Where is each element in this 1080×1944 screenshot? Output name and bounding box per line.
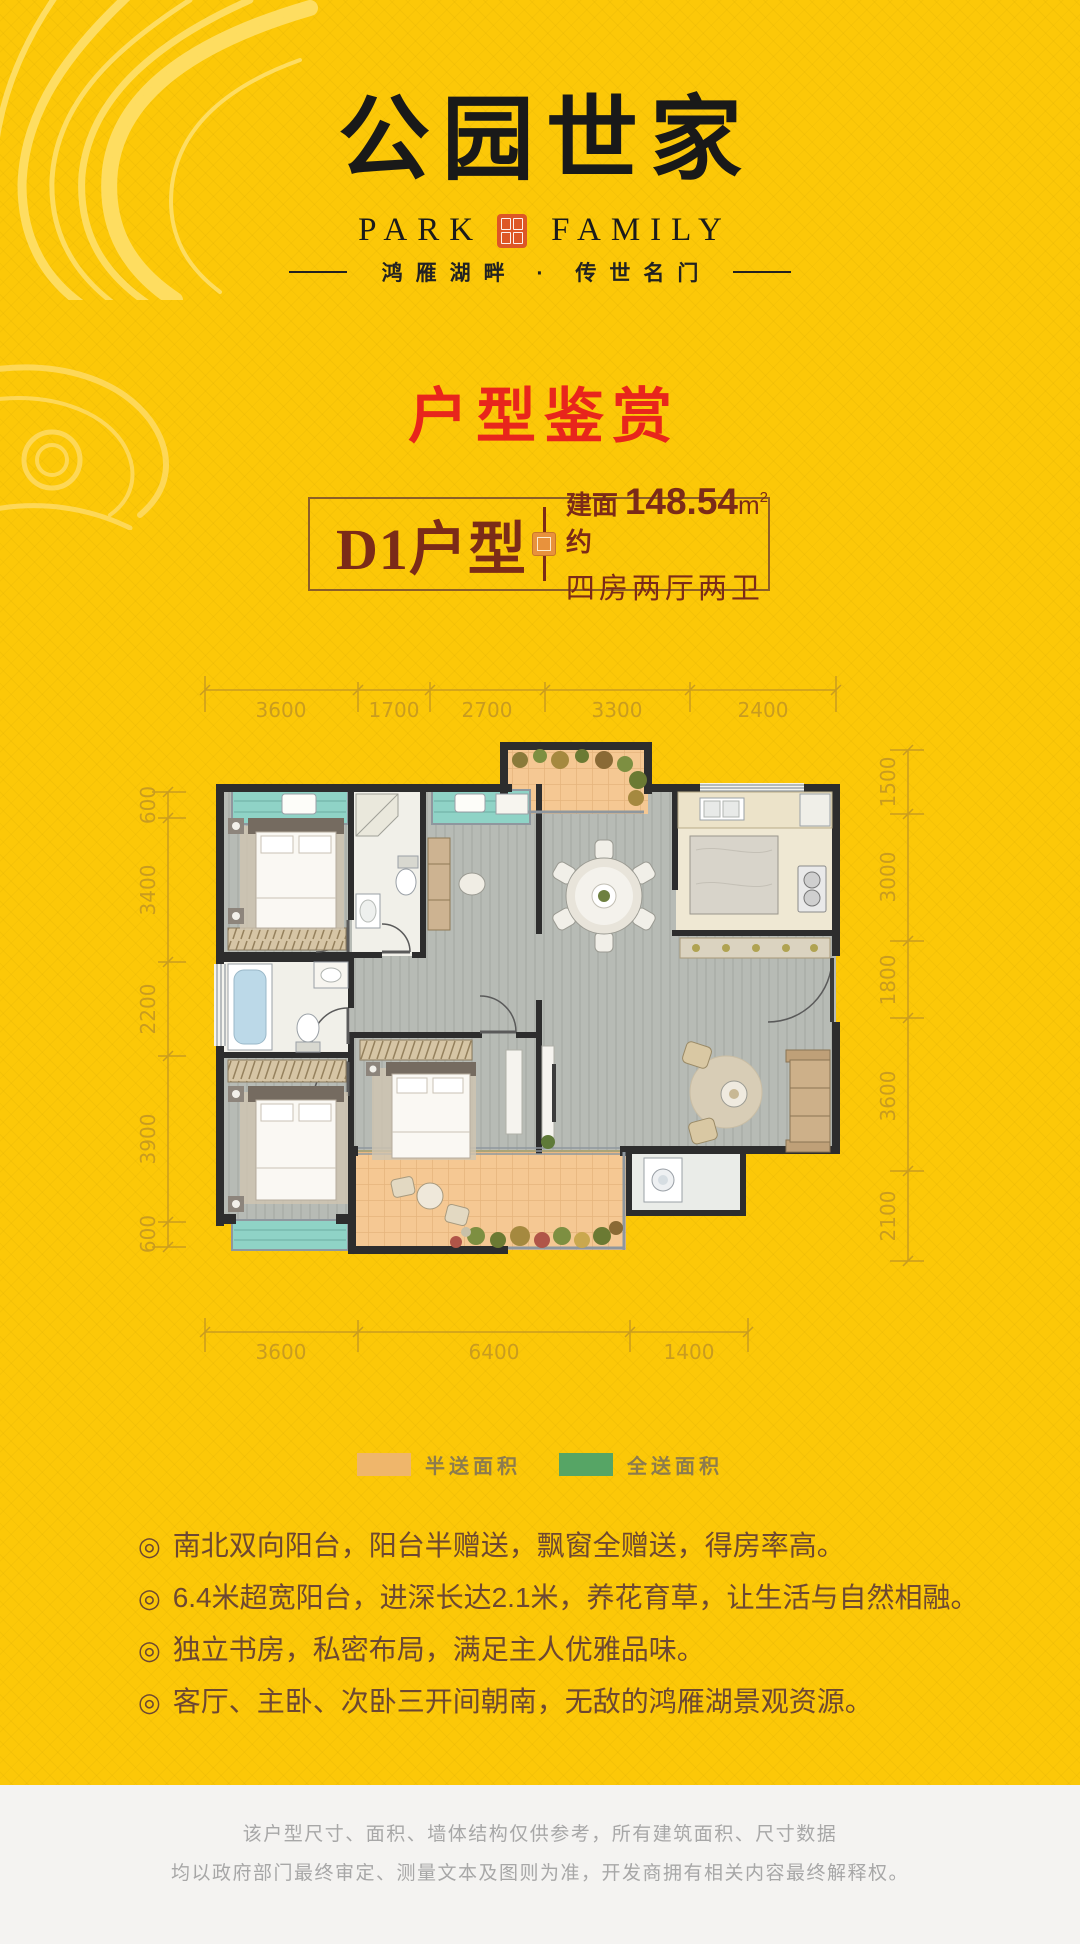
bullet-icon: ◎ (138, 1533, 161, 1559)
dim-top-1: 3600 (256, 698, 307, 722)
bed-master (228, 1086, 348, 1212)
feature-text: 南北双向阳台，阳台半赠送，飘窗全赠送，得房率高。 (173, 1532, 845, 1560)
disclaimer-footer: 该户型尺寸、面积、墙体结构仅供参考，所有建筑面积、尺寸数据 均以政府部门最终审定… (0, 1785, 1080, 1944)
disclaimer-line-2: 均以政府部门最终审定、测量文本及图则为准，开发商拥有相关内容最终解释权。 (0, 1844, 1080, 1883)
unit-area-unit: m (738, 490, 760, 521)
feature-item: ◎ 独立书房，私密布局，满足主人优雅品味。 (138, 1636, 998, 1664)
bay-window-master (232, 1220, 348, 1250)
tagline-text: 鸿雁湖畔 · 传世名门 (369, 257, 712, 287)
feature-text: 客厅、主卧、次卧三开间朝南，无敌的鸿雁湖景观资源。 (173, 1688, 873, 1716)
dim-top-5: 2400 (738, 698, 789, 722)
bullet-icon: ◎ (138, 1585, 161, 1611)
window-seat-2 (455, 794, 485, 812)
dim-right-1: 1500 (876, 757, 900, 808)
bullet-icon: ◎ (138, 1689, 161, 1715)
dim-right-4: 3600 (876, 1071, 900, 1122)
tagline-dash-right (733, 271, 791, 273)
bullet-icon: ◎ (138, 1637, 161, 1663)
unit-name: D1户型 (336, 502, 527, 586)
brand-logo-en: PARK FAMILY (0, 212, 1080, 249)
disclaimer-line-1: 该户型尺寸、面积、墙体结构仅供参考，所有建筑面积、尺寸数据 (0, 1785, 1080, 1844)
legend-label-full: 全送面积 (627, 1450, 723, 1479)
brand-logo-en-left: PARK (348, 212, 483, 249)
page-title: 户型鉴赏 (0, 368, 1080, 455)
unit-card: D1户型 建面约 148.54 m 2 四房两厅两卫 (308, 497, 770, 591)
legend-label-half: 半送面积 (425, 1450, 521, 1479)
dim-bottom-2: 6400 (469, 1340, 520, 1364)
feature-item: ◎ 客厅、主卧、次卧三开间朝南，无敌的鸿雁湖景观资源。 (138, 1688, 998, 1716)
dim-bottom-3: 1400 (664, 1340, 715, 1364)
unit-area-value: 148.54 (625, 481, 738, 523)
bed-top-left (228, 818, 344, 930)
dim-right-2: 3000 (876, 852, 900, 903)
brand-tagline: 鸿雁湖畔 · 传世名门 (0, 257, 1080, 287)
feature-item: ◎ 南北双向阳台，阳台半赠送，飘窗全赠送，得房率高。 (138, 1532, 998, 1560)
feature-text: 独立书房，私密布局，满足主人优雅品味。 (173, 1636, 705, 1664)
feature-text: 6.4米超宽阳台，进深长达2.1米，养花育草，让生活与自然相融。 (173, 1584, 979, 1612)
unit-seal-icon (532, 532, 556, 556)
unit-divider (543, 507, 546, 581)
tagline-dash-left (289, 271, 347, 273)
dim-left-1: 600 (136, 786, 160, 824)
dim-top-2: 1700 (369, 698, 420, 722)
dim-right-5: 2100 (876, 1191, 900, 1242)
unit-rooms: 四房两厅两卫 (566, 565, 768, 607)
dim-left-3: 2200 (136, 984, 160, 1035)
dim-right-3: 1800 (876, 955, 900, 1006)
unit-area-label: 建面约 (566, 485, 623, 559)
brand-logo-en-right: FAMILY (541, 212, 732, 249)
brand-seal-icon (497, 214, 527, 248)
dim-left-5: 600 (136, 1215, 160, 1253)
floor-plan: 3600 1700 2700 3300 2400 3600 6400 1400 … (0, 640, 1080, 1400)
dim-left-4: 3900 (136, 1114, 160, 1165)
washer (644, 1158, 682, 1202)
plan-legend: 半送面积 全送面积 (0, 1450, 1080, 1479)
brand-logo: 公园世家 (0, 92, 1080, 189)
window-seat-1 (282, 794, 316, 814)
feature-item: ◎ 6.4米超宽阳台，进深长达2.1米，养花育草，让生活与自然相融。 (138, 1584, 998, 1612)
feature-list: ◎ 南北双向阳台，阳台半赠送，飘窗全赠送，得房率高。 ◎ 6.4米超宽阳台，进深… (138, 1532, 998, 1716)
legend-swatch-full (559, 1453, 613, 1476)
unit-area-unit-sup: 2 (760, 489, 768, 506)
poster: 公园世家 PARK FAMILY 鸿雁湖畔 · 传世名门 户型鉴赏 D1户型 建… (0, 0, 1080, 1944)
dim-bottom-1: 3600 (256, 1340, 307, 1364)
dim-top-3: 2700 (462, 698, 513, 722)
shoe-cabinet (680, 938, 830, 958)
unit-info: 建面约 148.54 m 2 四房两厅两卫 (566, 481, 768, 607)
dim-top-4: 3300 (592, 698, 643, 722)
legend-swatch-half (357, 1453, 411, 1476)
dim-left-2: 3400 (136, 865, 160, 916)
unit-area: 建面约 148.54 m 2 (566, 481, 768, 559)
